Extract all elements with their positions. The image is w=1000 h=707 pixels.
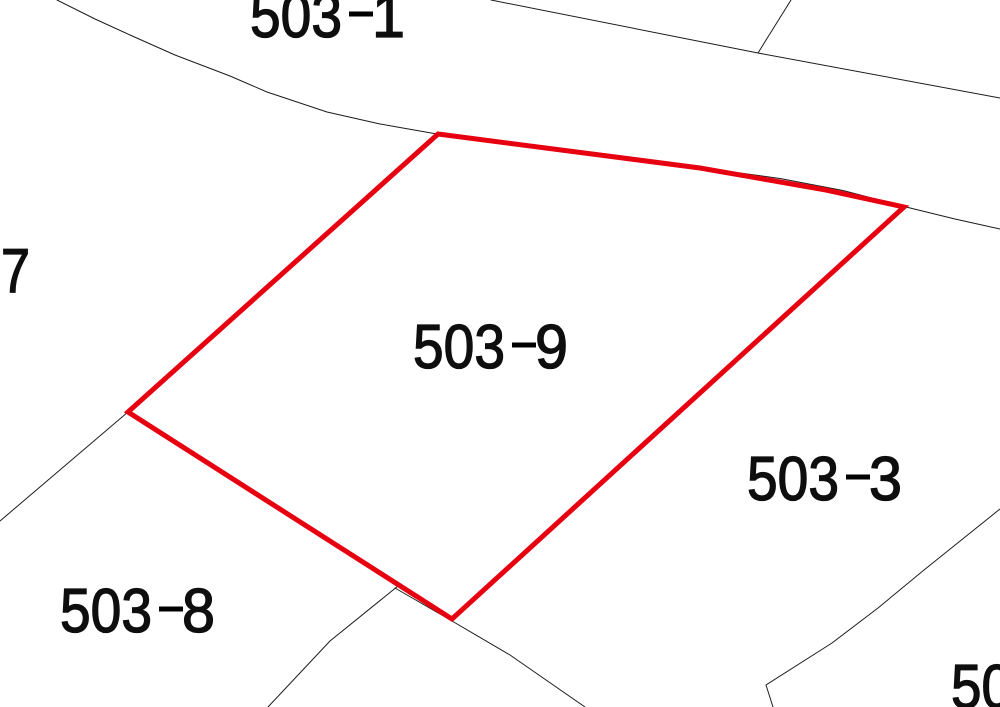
svg-text:3: 3 [869,445,902,514]
svg-text:9: 9 [535,313,568,382]
svg-text:7: 7 [1,237,30,306]
svg-text:503: 503 [413,313,505,382]
svg-text:50: 50 [951,653,1000,707]
svg-text:503: 503 [747,445,839,514]
svg-text:1: 1 [372,0,405,51]
svg-text:503: 503 [250,0,342,51]
svg-text:8: 8 [182,577,215,646]
svg-text:503: 503 [60,577,152,646]
